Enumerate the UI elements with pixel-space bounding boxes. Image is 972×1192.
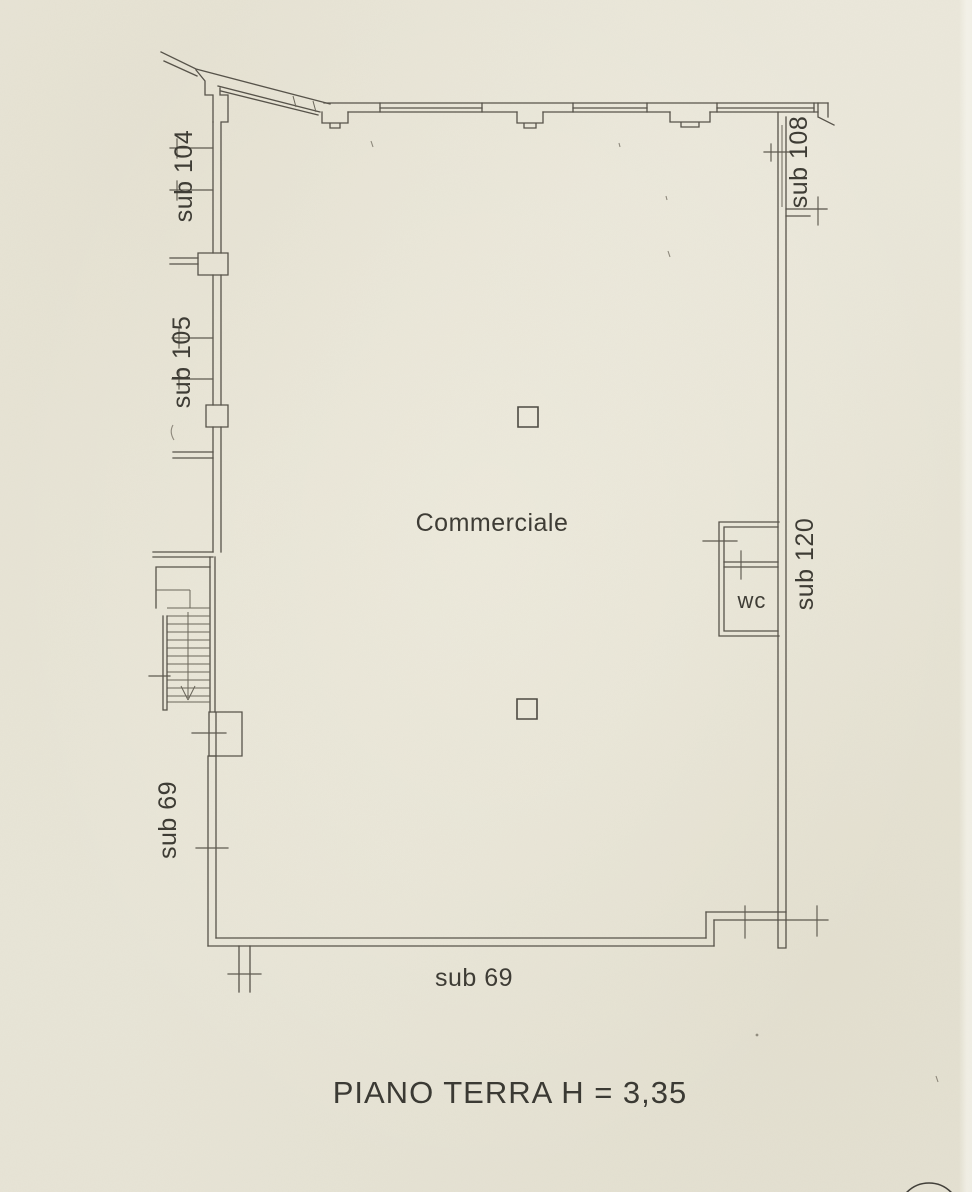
label-sub-104: sub 104: [170, 130, 198, 222]
label-sub-108: sub 108: [785, 116, 813, 208]
label-sub-69-bottom: sub 69: [435, 964, 513, 992]
label-sub-120: sub 120: [791, 518, 819, 610]
scanned-plan-page: sub 104 sub 105 sub 108 sub 120 sub 69 s…: [0, 0, 972, 1192]
label-sub-105: sub 105: [168, 316, 196, 408]
floor-plan: sub 104 sub 105 sub 108 sub 120 sub 69 s…: [0, 0, 972, 1192]
paper-texture: [0, 0, 972, 1192]
room-label-commerciale: Commerciale: [416, 509, 569, 537]
plan-caption: PIANO TERRA H = 3,35: [333, 1075, 688, 1110]
label-sub-69-left: sub 69: [154, 781, 182, 859]
wc-label: wc: [737, 588, 767, 613]
